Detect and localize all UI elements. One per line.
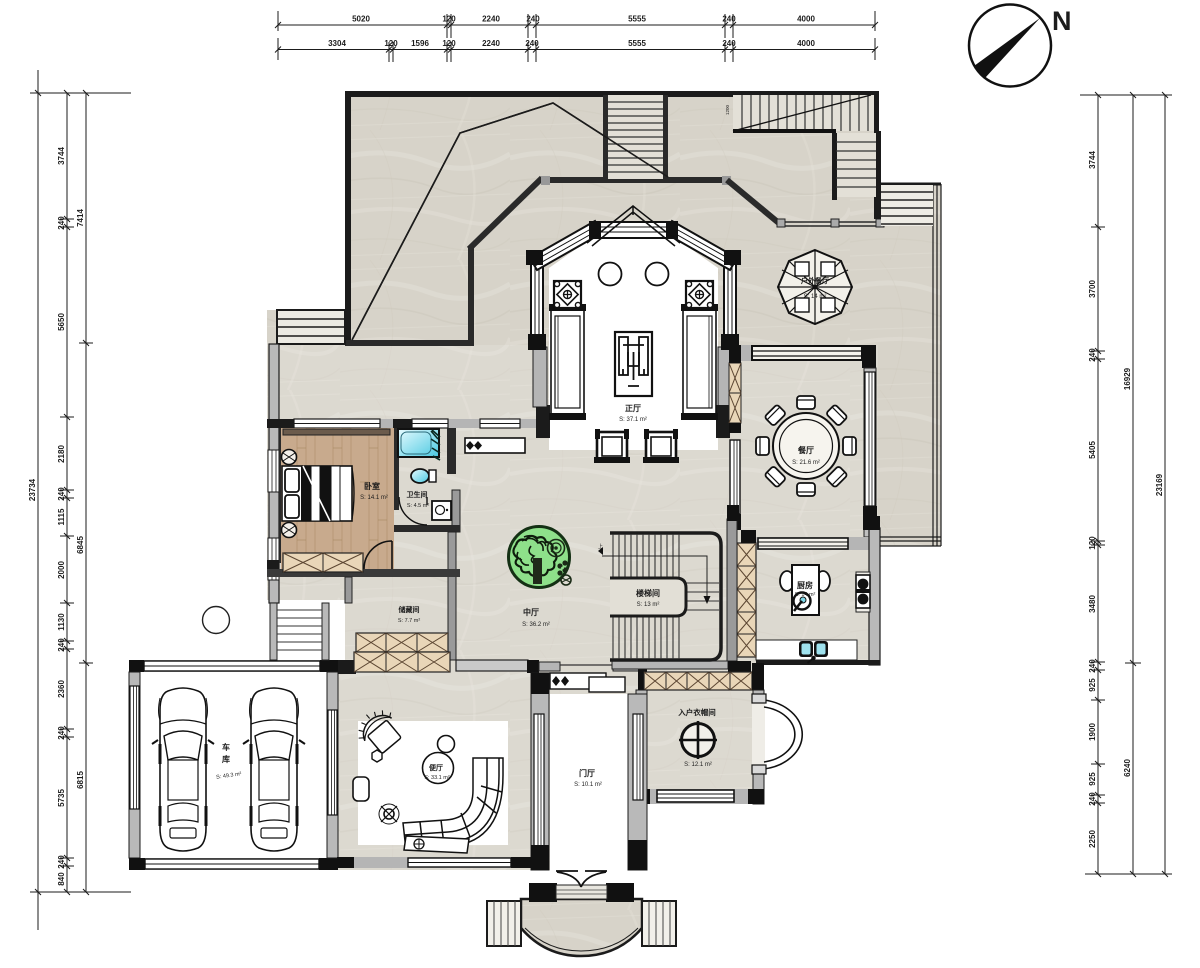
svg-text:S: 12.1 m²: S: 12.1 m² (684, 762, 712, 768)
svg-text:5735: 5735 (57, 789, 66, 807)
svg-text:5650: 5650 (57, 313, 66, 331)
svg-text:4000: 4000 (797, 39, 815, 48)
svg-text:户外餐厅: 户外餐厅 (801, 276, 829, 285)
svg-text:925: 925 (1088, 772, 1097, 786)
svg-text:3480: 3480 (1088, 595, 1097, 613)
svg-text:240: 240 (57, 216, 66, 230)
svg-text:6845: 6845 (76, 536, 85, 554)
svg-text:2360: 2360 (57, 680, 66, 698)
svg-text:16929: 16929 (1123, 367, 1132, 390)
svg-text:1900: 1900 (1088, 723, 1097, 741)
svg-text:中厅: 中厅 (523, 607, 539, 617)
svg-text:厨房: 厨房 (797, 580, 813, 590)
svg-text:1200: 1200 (725, 104, 730, 115)
svg-text:S: 10.1 m²: S: 10.1 m² (574, 782, 602, 788)
svg-text:便厅: 便厅 (429, 763, 443, 772)
svg-text:240: 240 (525, 39, 539, 48)
svg-text:上: 上 (598, 543, 603, 550)
svg-text:S: 36.2 m²: S: 36.2 m² (522, 622, 550, 628)
svg-text:楼梯间: 楼梯间 (636, 588, 660, 598)
svg-text:240: 240 (722, 15, 736, 24)
svg-text:1115: 1115 (57, 508, 66, 525)
svg-text:240: 240 (1088, 792, 1097, 806)
svg-text:S: 14 m²: S: 14 m² (804, 294, 827, 300)
svg-text:S: 13 m²: S: 13 m² (637, 602, 660, 608)
svg-text:2240: 2240 (482, 39, 500, 48)
svg-text:240: 240 (1088, 348, 1097, 362)
svg-text:储藏间: 储藏间 (398, 605, 420, 614)
svg-text:120: 120 (384, 39, 398, 48)
svg-text:3744: 3744 (1088, 151, 1097, 169)
svg-text:入户衣帽间: 入户衣帽间 (677, 707, 716, 717)
svg-text:餐厅: 餐厅 (797, 445, 814, 455)
svg-text:840: 840 (57, 872, 66, 886)
svg-text:2240: 2240 (482, 15, 500, 24)
svg-text:240: 240 (526, 15, 540, 24)
svg-text:S: 14 m²: S: 14 m² (795, 592, 816, 598)
svg-text:240: 240 (57, 638, 66, 652)
svg-text:2250: 2250 (1088, 830, 1097, 848)
svg-text:2000: 2000 (57, 561, 66, 579)
svg-text:240: 240 (722, 39, 736, 48)
svg-text:5555: 5555 (628, 15, 646, 24)
svg-text:23734: 23734 (28, 478, 37, 501)
svg-text:1130: 1130 (57, 613, 66, 631)
svg-text:S: 33.1 m²: S: 33.1 m² (424, 775, 450, 781)
svg-text:5020: 5020 (352, 15, 370, 24)
svg-text:S: 14.1 m²: S: 14.1 m² (360, 495, 388, 501)
svg-text:3700: 3700 (1088, 280, 1097, 298)
svg-text:门厅: 门厅 (579, 768, 595, 778)
svg-text:S: 4.5 m²: S: 4.5 m² (407, 503, 429, 509)
svg-text:240: 240 (57, 487, 66, 501)
svg-text:1596: 1596 (411, 39, 429, 48)
svg-text:120: 120 (442, 15, 456, 24)
svg-text:120: 120 (442, 39, 456, 48)
svg-text:5555: 5555 (628, 39, 646, 48)
svg-text:车: 车 (222, 742, 230, 752)
svg-text:6815: 6815 (76, 771, 85, 789)
svg-text:2180: 2180 (57, 445, 66, 463)
svg-text:23169: 23169 (1155, 473, 1164, 496)
svg-text:240: 240 (57, 855, 66, 869)
svg-text:7414: 7414 (76, 209, 85, 227)
svg-text:240: 240 (57, 726, 66, 740)
svg-text:N: N (1052, 6, 1072, 36)
svg-text:S: 7.7 m²: S: 7.7 m² (398, 618, 420, 624)
svg-text:3304: 3304 (328, 39, 346, 48)
svg-text:S: 21.6 m²: S: 21.6 m² (792, 460, 820, 466)
svg-text:4000: 4000 (797, 15, 815, 24)
svg-text:120: 120 (1088, 536, 1097, 550)
svg-text:卫生间: 卫生间 (407, 490, 428, 499)
svg-text:5405: 5405 (1088, 441, 1097, 459)
svg-text:库: 库 (222, 754, 230, 764)
svg-text:240: 240 (1088, 659, 1097, 673)
svg-text:正厅: 正厅 (625, 404, 641, 413)
svg-text:卧室: 卧室 (364, 481, 380, 491)
svg-text:3744: 3744 (57, 147, 66, 165)
svg-text:6240: 6240 (1123, 759, 1132, 777)
svg-text:925: 925 (1088, 678, 1097, 692)
svg-text:S: 37.1 m²: S: 37.1 m² (619, 417, 647, 423)
